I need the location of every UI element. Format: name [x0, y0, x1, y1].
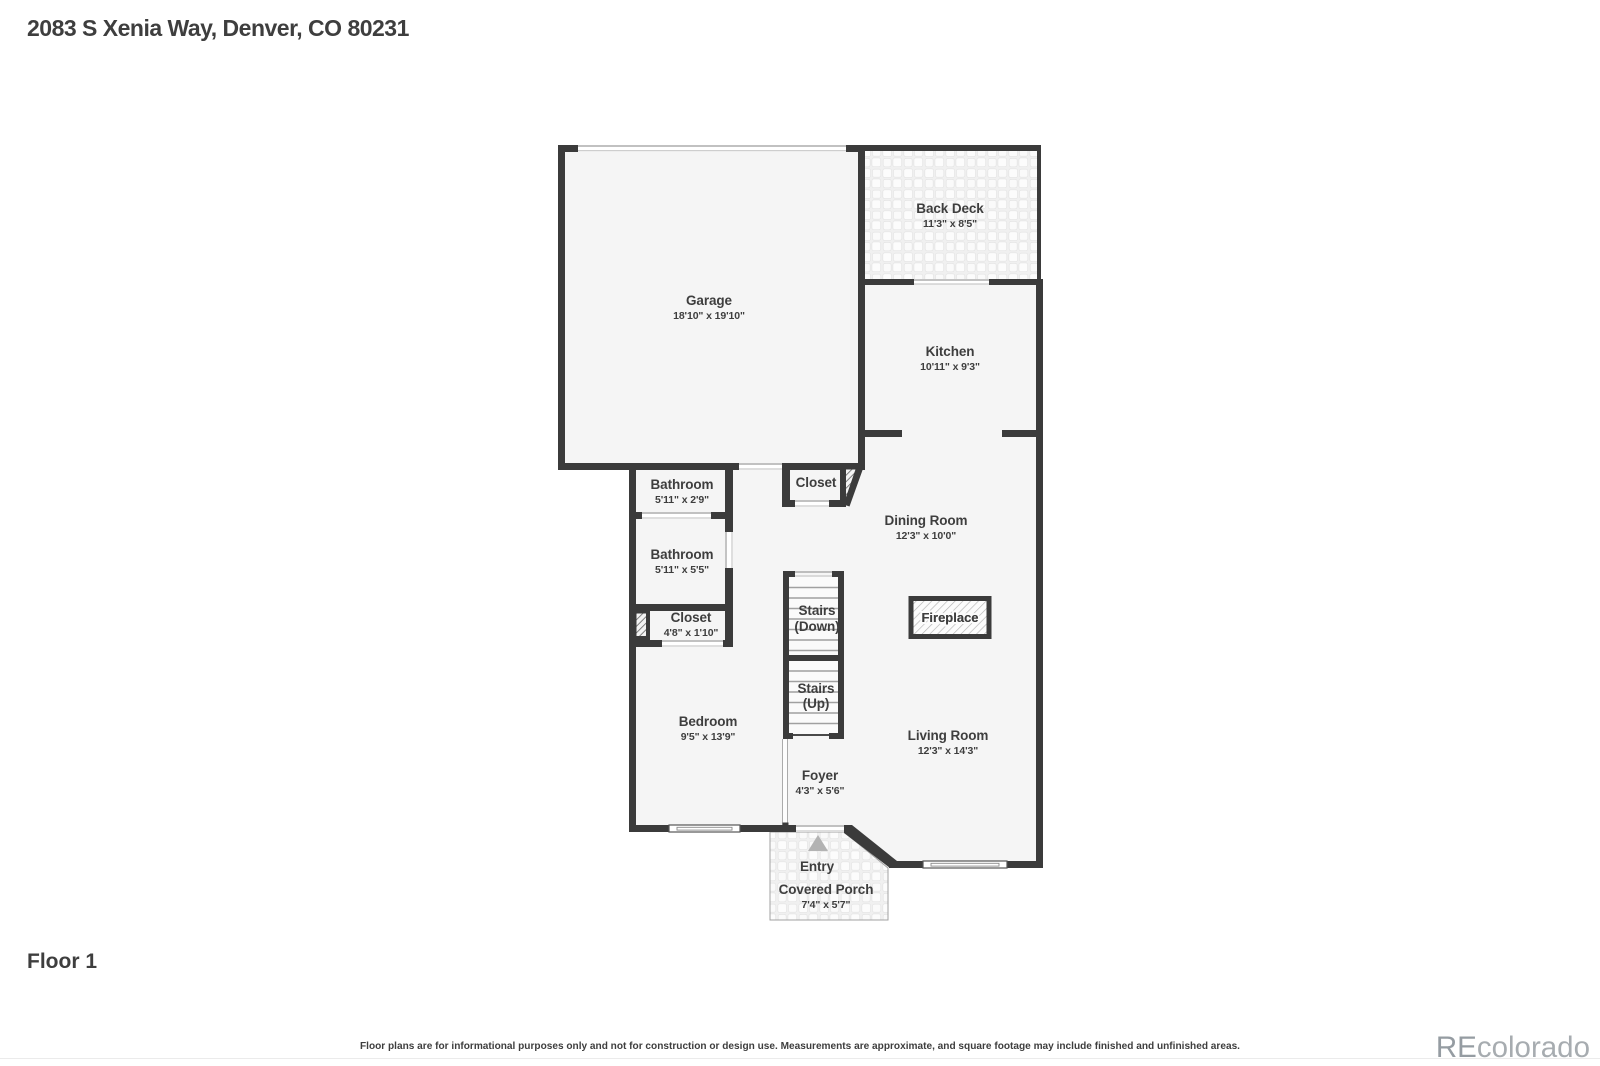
svg-text:Garage: Garage: [686, 293, 733, 308]
svg-text:Kitchen: Kitchen: [926, 344, 975, 359]
svg-text:Living Room: Living Room: [908, 728, 989, 743]
svg-text:12'3" x 10'0": 12'3" x 10'0": [896, 530, 956, 542]
svg-text:Floor 1: Floor 1: [27, 950, 97, 973]
svg-text:REcolorado: REcolorado: [1436, 1031, 1590, 1064]
svg-text:Entry: Entry: [800, 859, 835, 874]
svg-text:4'8" x 1'10": 4'8" x 1'10": [664, 627, 719, 639]
svg-text:Stairs: Stairs: [798, 681, 835, 696]
svg-text:Covered Porch: Covered Porch: [779, 882, 874, 897]
svg-text:Foyer: Foyer: [802, 768, 839, 783]
svg-text:(Down): (Down): [794, 619, 839, 634]
svg-text:Bathroom: Bathroom: [651, 477, 714, 492]
svg-text:10'11" x 9'3": 10'11" x 9'3": [920, 361, 980, 373]
svg-text:Floor plans are for informatio: Floor plans are for informational purpos…: [360, 1041, 1240, 1052]
svg-text:Closet: Closet: [796, 475, 837, 490]
svg-text:Bedroom: Bedroom: [679, 714, 738, 729]
svg-text:4'3" x 5'6": 4'3" x 5'6": [796, 785, 845, 797]
svg-text:(Up): (Up): [803, 696, 830, 711]
svg-text:Fireplace: Fireplace: [921, 610, 978, 625]
svg-text:12'3" x 14'3": 12'3" x 14'3": [918, 745, 978, 757]
svg-text:11'3" x 8'5": 11'3" x 8'5": [923, 218, 977, 230]
svg-text:Dining Room: Dining Room: [885, 513, 968, 528]
svg-text:Closet: Closet: [671, 610, 712, 625]
svg-text:Bathroom: Bathroom: [651, 547, 714, 562]
svg-text:9'5" x 13'9": 9'5" x 13'9": [681, 731, 736, 743]
svg-text:5'11" x 5'5": 5'11" x 5'5": [655, 564, 709, 576]
svg-text:18'10" x 19'10": 18'10" x 19'10": [673, 310, 745, 322]
svg-text:7'4" x 5'7": 7'4" x 5'7": [802, 899, 851, 911]
svg-text:2083 S Xenia Way, Denver, CO 8: 2083 S Xenia Way, Denver, CO 80231: [27, 15, 410, 41]
svg-text:5'11" x 2'9": 5'11" x 2'9": [655, 494, 709, 506]
svg-text:Stairs: Stairs: [799, 603, 836, 618]
svg-text:Back Deck: Back Deck: [916, 201, 984, 216]
